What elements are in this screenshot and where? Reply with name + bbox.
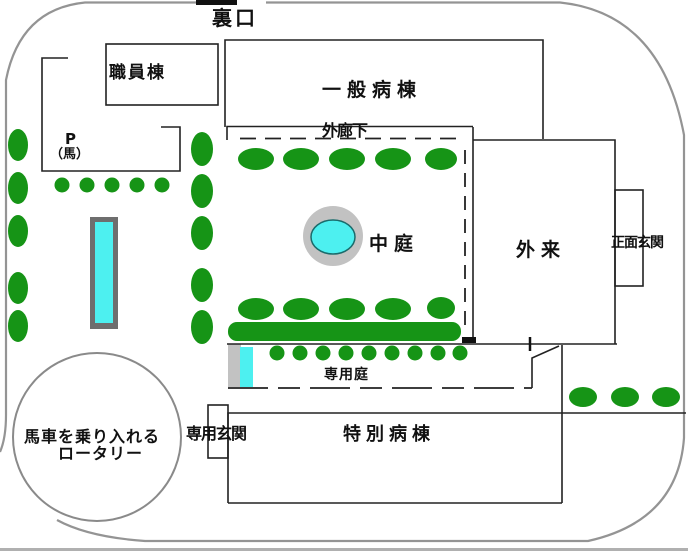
tree-row-courtyard-bottom: [238, 297, 455, 320]
main-entrance-label: 正面玄関: [611, 234, 664, 251]
courtyard-pond: [303, 206, 363, 266]
parking-horse-label: （馬）: [50, 146, 89, 162]
parking-p-label: P: [65, 130, 76, 148]
outer-corridor-label: 外廊下: [321, 121, 368, 140]
tree-column-left: [8, 129, 28, 342]
reflecting-pool-west: [90, 217, 118, 329]
tree-row-courtyard-top: [238, 148, 457, 170]
rotary-label-line2: ロータリー: [58, 444, 143, 463]
shrub-row-private-garden: [270, 346, 468, 361]
outpatient-label: 外来: [516, 238, 566, 261]
hospital-grounds-map: 裏口 職員棟 一般病棟 外廊下 P （馬） 中庭 外来 正面玄関 専用庭 専用玄…: [0, 0, 688, 552]
small-pool-private-garden: [228, 344, 253, 387]
back-gate-label: 裏口: [211, 6, 258, 30]
private-garden-corner: [532, 346, 559, 388]
outpatient-building: [473, 127, 615, 344]
general-ward-label: 一般病棟: [322, 78, 422, 101]
private-garden-label: 専用庭: [324, 366, 369, 383]
special-ward-label: 特別病棟: [343, 423, 435, 445]
tree-column-middle: [191, 132, 213, 344]
staff-building-label: 職員棟: [109, 62, 166, 83]
courtyard-label: 中庭: [369, 232, 419, 255]
private-entrance-label: 専用玄関: [186, 424, 246, 443]
hedge-bar: [228, 322, 461, 341]
back-gate-bar: [196, 0, 237, 5]
tree-row-east-road: [569, 387, 680, 407]
shrub-row-parking: [55, 178, 170, 193]
wall-junction-mark: [462, 337, 476, 343]
